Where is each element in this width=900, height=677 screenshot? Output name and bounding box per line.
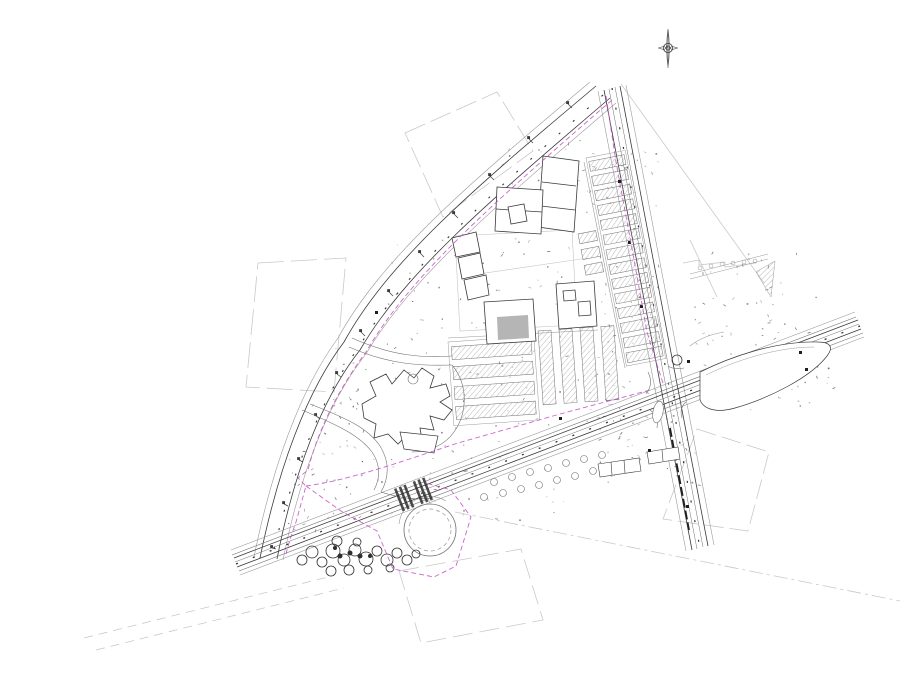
- central-parking-east-block: [538, 326, 619, 405]
- building-e: [556, 281, 597, 329]
- street-trees: [481, 452, 615, 501]
- main-building-complex: [452, 156, 597, 344]
- building-b-annex: [508, 204, 527, 224]
- building-terrace-2: [458, 253, 484, 279]
- traffic-island: [700, 342, 830, 410]
- site-plan-page: [0, 0, 900, 677]
- central-parking-west-block: [448, 336, 540, 426]
- hatched-verge: [756, 261, 775, 297]
- west-building-annex: [400, 432, 438, 453]
- roadside-tree-path: [690, 254, 775, 297]
- east-parking-substrip: [578, 231, 604, 276]
- bus-stop-structures: [598, 447, 680, 477]
- east-parking-column: [586, 150, 666, 366]
- building-d-filled-mass: [497, 315, 529, 340]
- building-a: [538, 156, 579, 232]
- north-arrow-icon: [659, 29, 678, 68]
- site-plan-drawing: [0, 0, 900, 677]
- building-terrace-3: [464, 275, 489, 300]
